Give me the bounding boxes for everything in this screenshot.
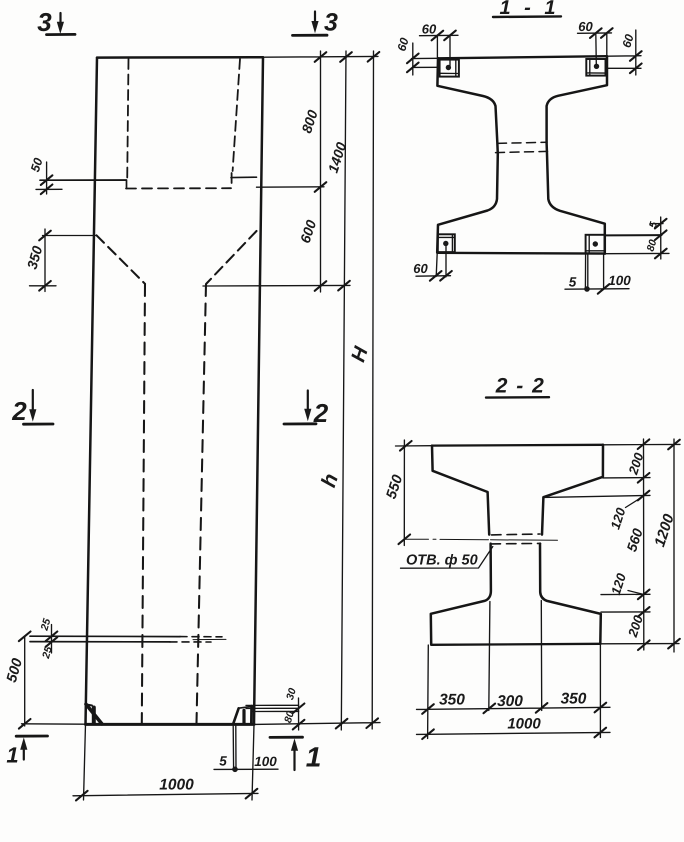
svg-text:1: 1: [306, 742, 322, 773]
svg-text:60: 60: [394, 36, 411, 53]
svg-text:1000: 1000: [159, 777, 194, 794]
svg-text:80: 80: [645, 238, 660, 253]
svg-text:25: 25: [40, 645, 55, 661]
svg-text:60: 60: [619, 32, 636, 49]
svg-text:50: 50: [28, 156, 46, 174]
svg-text:H: H: [347, 344, 373, 365]
svg-text:100: 100: [254, 754, 277, 769]
svg-text:1: 1: [6, 743, 18, 768]
svg-text:ОТВ. ф 50: ОТВ. ф 50: [406, 553, 478, 569]
svg-text:350: 350: [561, 691, 587, 708]
svg-text:3: 3: [324, 9, 338, 37]
svg-text:500: 500: [4, 657, 26, 685]
svg-text:60: 60: [413, 261, 428, 276]
svg-text:5: 5: [647, 220, 660, 229]
svg-text:60: 60: [578, 19, 593, 34]
svg-text:300: 300: [497, 693, 523, 710]
svg-text:550: 550: [384, 473, 407, 501]
svg-text:5: 5: [219, 754, 227, 769]
svg-text:350: 350: [24, 244, 46, 271]
svg-text:1000: 1000: [507, 716, 541, 733]
svg-text:560: 560: [623, 526, 646, 553]
svg-text:800: 800: [298, 108, 321, 135]
svg-text:3: 3: [37, 7, 52, 37]
svg-text:600: 600: [297, 218, 320, 245]
svg-text:100: 100: [608, 273, 631, 288]
svg-text:120: 120: [608, 571, 629, 597]
svg-text:60: 60: [422, 22, 437, 37]
svg-text:200: 200: [625, 613, 647, 640]
svg-text:h: h: [317, 471, 343, 490]
svg-text:2 - 2: 2 - 2: [495, 375, 546, 398]
svg-text:5: 5: [569, 275, 577, 290]
svg-text:2: 2: [11, 396, 27, 426]
svg-text:2: 2: [313, 398, 329, 428]
svg-text:30: 30: [284, 687, 299, 702]
svg-text:350: 350: [439, 692, 465, 709]
svg-text:120: 120: [608, 505, 629, 531]
